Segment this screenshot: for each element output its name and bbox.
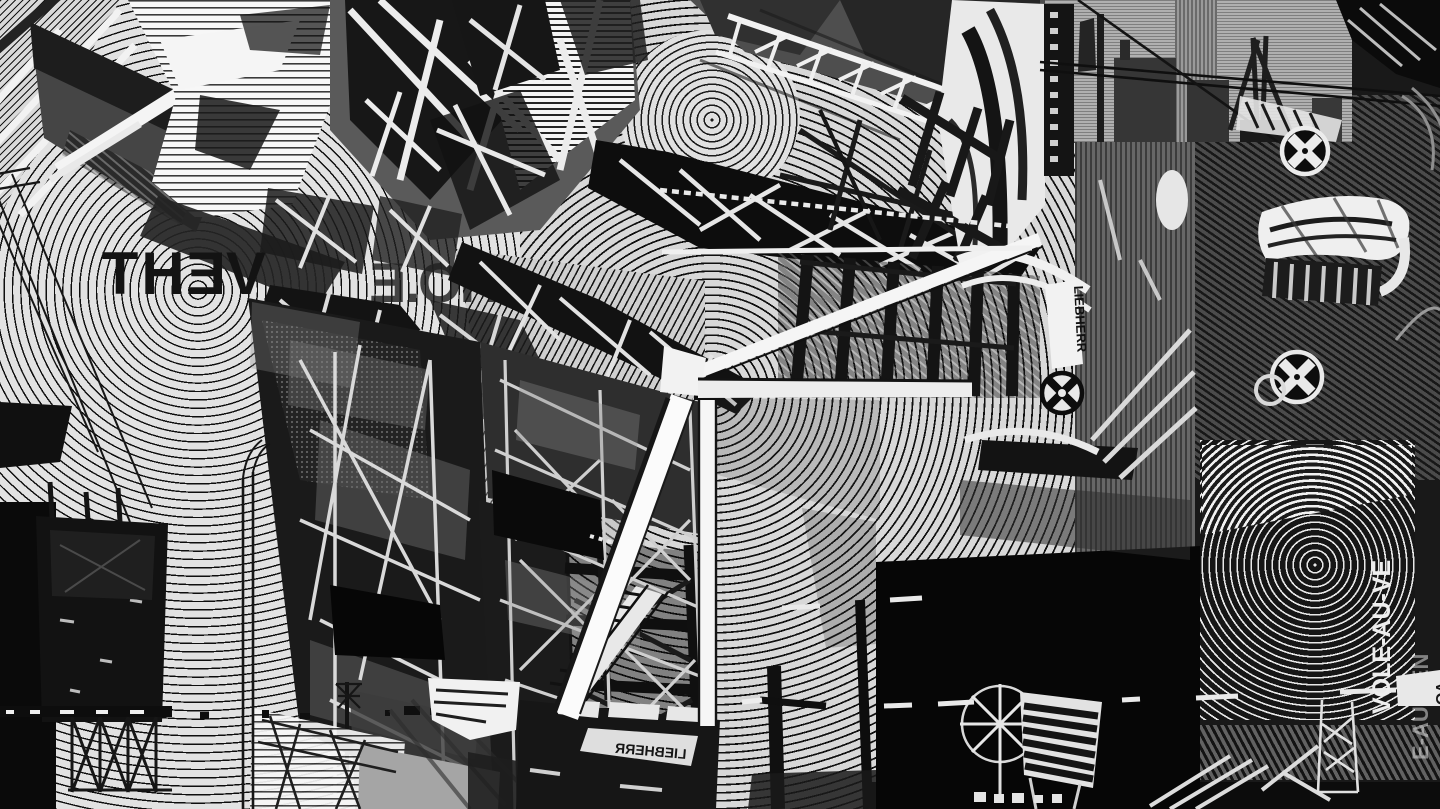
svg-text:E: E (186, 240, 226, 307)
svg-text:T: T (102, 240, 139, 307)
svg-text:E-AU-VEN: E-AU-VEN (1408, 654, 1433, 760)
svg-text:VOLE-AU-VE: VOLE-AU-VE (1368, 560, 1396, 714)
svg-text:VO: VO (1432, 682, 1440, 705)
svg-text:H: H (141, 240, 184, 307)
svg-text:V: V (226, 240, 266, 307)
